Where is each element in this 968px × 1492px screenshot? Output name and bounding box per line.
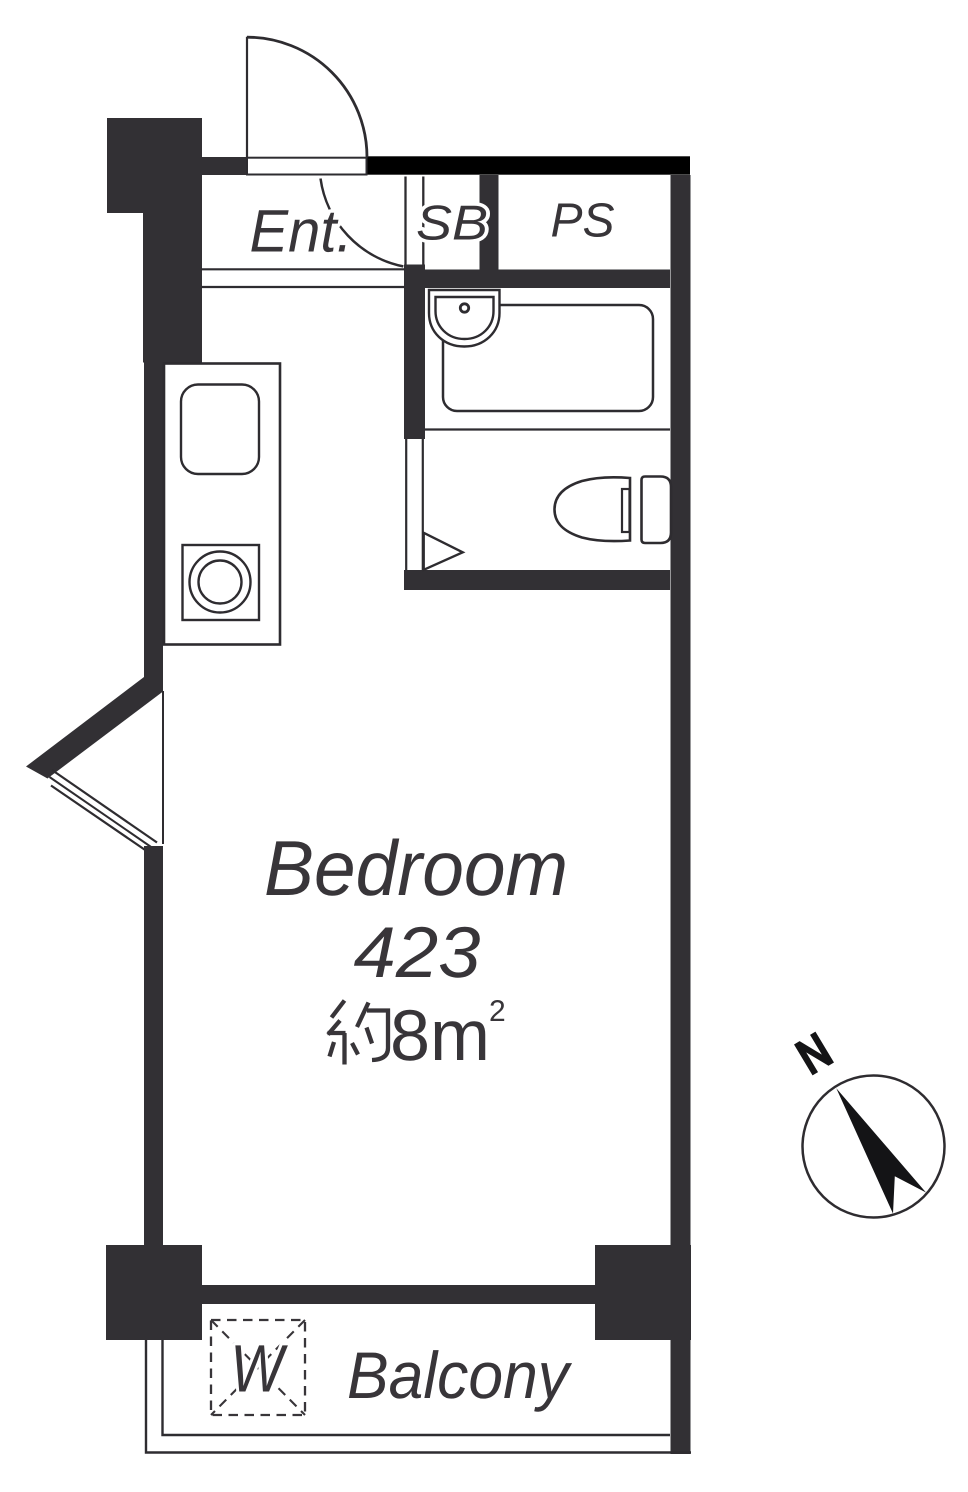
svg-text:8m: 8m xyxy=(390,996,490,1076)
svg-text:2: 2 xyxy=(489,995,506,1028)
svg-text:PS: PS xyxy=(551,195,615,248)
svg-text:W: W xyxy=(231,1332,289,1407)
svg-text:SB: SB xyxy=(416,197,488,251)
svg-text:Bedroom: Bedroom xyxy=(264,824,568,912)
svg-text:Balcony: Balcony xyxy=(347,1338,573,1412)
svg-text:423: 423 xyxy=(354,913,481,993)
svg-text:Ent.: Ent. xyxy=(250,198,353,265)
